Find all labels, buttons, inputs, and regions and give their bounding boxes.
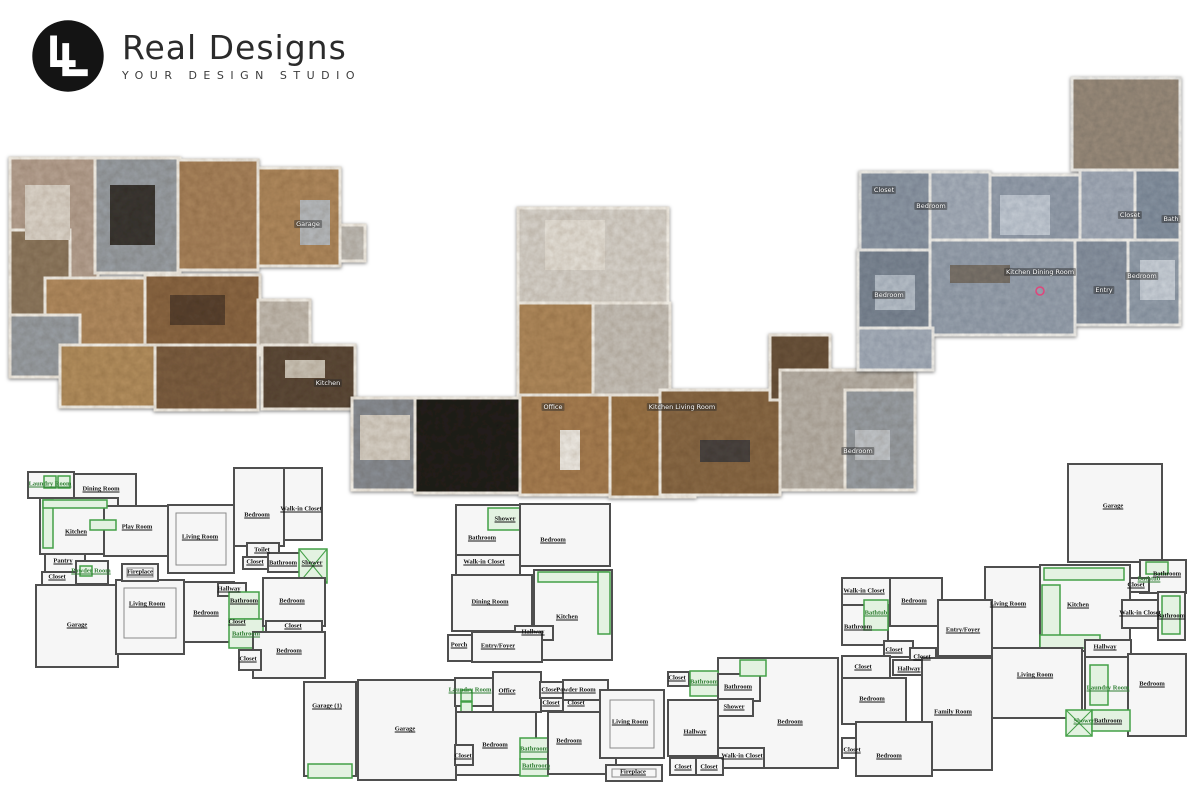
room-label: Hallway xyxy=(521,629,544,636)
scan-plan-right-graphic xyxy=(0,0,1200,800)
room-label: Closet xyxy=(48,574,65,581)
room-label: Dining Room xyxy=(82,486,119,493)
room-label: Fireplace xyxy=(620,769,646,776)
room-label: Bathroom xyxy=(230,598,258,605)
room-label: Bathroom xyxy=(844,624,872,631)
room-label: Closet xyxy=(872,186,896,194)
room-label: Garage xyxy=(67,622,88,629)
room-label: Powder Room xyxy=(71,568,110,575)
room-label: Office xyxy=(542,403,565,411)
room-label: Pantry xyxy=(53,558,72,565)
room-label: Bathroom xyxy=(1094,718,1122,725)
room-label: Bedroom xyxy=(482,742,508,749)
schematic-plan-center: ShowerBathroomBedroomWalk-in ClosetDinin… xyxy=(0,0,1200,800)
room-label: Powder Room xyxy=(556,687,595,694)
brand-logo: Real Designs YOUR DESIGN STUDIO xyxy=(30,18,361,94)
schematic-plan-left-graphic xyxy=(0,0,1200,800)
room-label: Entry/Foyer xyxy=(946,627,980,634)
room-label: Living Room xyxy=(1017,672,1053,679)
room-label: Bedroom xyxy=(872,291,905,299)
room-label: Bathroom xyxy=(232,631,260,638)
room-label: Entry xyxy=(1093,286,1114,294)
room-label: Garage xyxy=(395,726,416,733)
scan-plan-left: GarageKitchen xyxy=(0,0,1200,800)
room-label: Closet xyxy=(854,664,871,671)
room-label: Living Room xyxy=(990,601,1026,608)
room-label: Closet xyxy=(885,647,902,654)
room-label: Family Room xyxy=(934,709,972,716)
room-label: Shower xyxy=(1074,718,1095,725)
room-label: Kitchen xyxy=(314,379,342,387)
room-label: Bedroom xyxy=(777,719,803,726)
room-label: Hallway xyxy=(683,729,706,736)
room-label: Closet xyxy=(454,753,471,760)
room-label: Hallway xyxy=(217,586,240,593)
room-label: Closet xyxy=(239,656,256,663)
room-label: Kitchen Living Room xyxy=(647,403,717,411)
room-label: Bedroom xyxy=(244,512,270,519)
room-label: Closet xyxy=(567,700,584,707)
room-label: Bathtub xyxy=(865,610,888,617)
schematic-plan-right: GarageWalk-in ClosetBedroomBathtubBathro… xyxy=(0,0,1200,800)
room-label: Bathroom xyxy=(1153,571,1181,578)
schematic-plan-left: Laundry RoomDining RoomKitchenPlay RoomL… xyxy=(0,0,1200,800)
room-label: Bathroom xyxy=(690,679,718,686)
room-label: Closet xyxy=(542,700,559,707)
room-label: Bedroom xyxy=(279,598,305,605)
room-label: Kitchen Dining Room xyxy=(1004,268,1076,276)
room-label: Bathroom xyxy=(269,560,297,567)
room-label: Fireplace xyxy=(127,569,153,576)
room-label: Bathtub xyxy=(1138,576,1161,583)
room-label: Walk-in Closet xyxy=(280,506,321,513)
room-label: Bathroom xyxy=(522,763,550,770)
room-label: Bedroom xyxy=(901,598,927,605)
room-label: Walk-in Closet xyxy=(843,588,884,595)
scan-plan-center-graphic xyxy=(0,0,1200,800)
room-label: Closet xyxy=(1118,211,1142,219)
room-label: Closet xyxy=(284,623,301,630)
room-label: Closet xyxy=(541,687,558,694)
room-label: Closet xyxy=(674,764,691,771)
room-label: Bedroom xyxy=(193,610,219,617)
room-label: Bedroom xyxy=(1139,681,1165,688)
room-label: Bedroom xyxy=(1125,272,1158,280)
room-label: Closet xyxy=(843,747,860,754)
schematic-plan-right-graphic xyxy=(0,0,1200,800)
room-label: Closet xyxy=(913,654,930,661)
scan-plan-left-graphic xyxy=(0,0,1200,800)
room-label: Kitchen xyxy=(1067,602,1089,609)
room-label: Closet xyxy=(246,559,263,566)
room-label: Bedroom xyxy=(276,648,302,655)
room-label: Living Room xyxy=(182,534,218,541)
room-label: Office xyxy=(499,688,516,695)
scan-plan-center: OfficeKitchen Living RoomBedroom xyxy=(0,0,1200,800)
brand-tagline: YOUR DESIGN STUDIO xyxy=(122,69,361,82)
room-label: Laundry Room xyxy=(1087,685,1130,692)
room-label: Shower xyxy=(724,704,745,711)
room-label: Living Room xyxy=(129,601,165,608)
room-label: Bedroom xyxy=(914,202,947,210)
room-label: Garage (1) xyxy=(312,703,342,710)
room-label: Closet xyxy=(1127,582,1144,589)
room-label: Closet xyxy=(228,619,245,626)
room-label: Garage xyxy=(294,220,322,228)
room-label: Porch xyxy=(451,642,468,649)
schematic-plan-center-graphic xyxy=(0,0,1200,800)
room-label: Laundry Room xyxy=(29,481,72,488)
room-label: Bathroom xyxy=(1157,613,1185,620)
room-label: Garage xyxy=(1103,503,1124,510)
room-label: Bedroom xyxy=(859,696,885,703)
room-label: Entry/Foyer xyxy=(481,643,515,650)
room-label: Shower xyxy=(302,560,323,567)
brand-monogram-icon xyxy=(30,18,106,94)
room-label: Bathroom xyxy=(520,746,548,753)
room-label: Bathroom xyxy=(468,535,496,542)
room-label: Walk-in Closet xyxy=(463,559,504,566)
scan-plan-right: ClosetBedroomClosetBathKitchen Dining Ro… xyxy=(0,0,1200,800)
room-label: Bath xyxy=(1161,215,1180,223)
scan-position-marker xyxy=(1036,287,1044,295)
room-label: Play Room xyxy=(122,524,153,531)
room-label: Dining Room xyxy=(471,599,508,606)
room-label: Living Room xyxy=(612,719,648,726)
room-label: Bedroom xyxy=(876,753,902,760)
room-label: Walk-in Closet xyxy=(1119,610,1160,617)
room-label: Closet xyxy=(700,764,717,771)
room-label: Shower xyxy=(495,516,516,523)
room-label: Walk-in Closet xyxy=(721,753,762,760)
room-label: Bedroom xyxy=(841,447,874,455)
room-label: Hallway xyxy=(1093,644,1116,651)
room-label: Bathroom xyxy=(724,684,752,691)
brand-name: Real Designs xyxy=(122,30,361,66)
room-label: Bedroom xyxy=(540,537,566,544)
room-label: Kitchen xyxy=(65,529,87,536)
room-label: Bedroom xyxy=(556,738,582,745)
room-label: Laundry Room xyxy=(449,687,492,694)
room-label: Toilet xyxy=(254,547,270,554)
room-label: Hallway xyxy=(897,666,920,673)
poster-canvas: Real Designs YOUR DESIGN STUDIO xyxy=(0,0,1200,800)
room-label: Kitchen xyxy=(556,614,578,621)
room-label: Closet xyxy=(668,675,685,682)
